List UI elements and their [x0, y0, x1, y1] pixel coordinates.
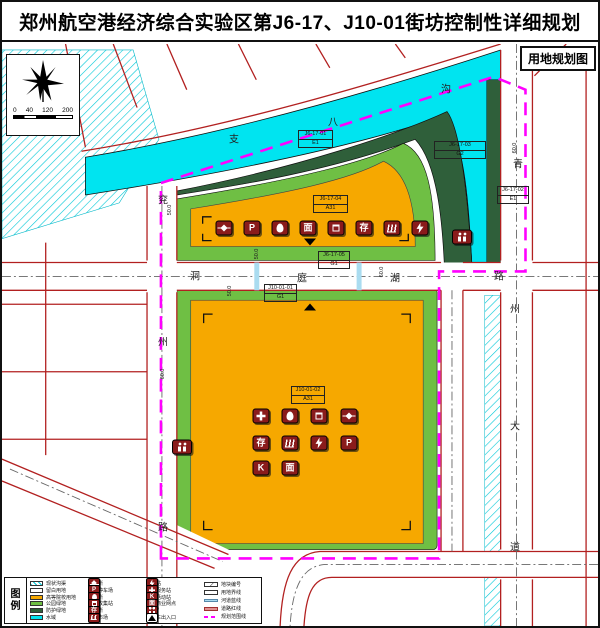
- switch-icon: [218, 224, 231, 233]
- scale-bar: [13, 115, 73, 119]
- legend-item-label: 规划范围线: [221, 613, 246, 620]
- facility-icon-plus: [253, 409, 270, 424]
- parcel-code: J10-01-01: [265, 285, 296, 294]
- facility-icon-drop: [282, 409, 299, 424]
- facility-icon-trash: [311, 409, 328, 424]
- legend-item: 肉菜市场: [88, 614, 142, 621]
- parcel-use-code: G1: [265, 294, 296, 302]
- legend-swatch-orange: [30, 595, 43, 600]
- legend-title: 图 例: [5, 578, 27, 623]
- entrance-triangle: [304, 239, 316, 246]
- map-sheet-label: 用地规划图: [520, 46, 596, 71]
- road-name-char: 湖: [390, 270, 400, 285]
- legend-col-landuse: 现状沟渠留白用地高等院校用地公园绿地防护绿地水域: [30, 580, 84, 621]
- road-name-char: 路: [158, 519, 168, 534]
- legend-item: 现状沟渠: [30, 580, 84, 587]
- parcel-code: J6-17-05: [319, 252, 349, 261]
- legend-item: 地块编号: [204, 581, 258, 588]
- facility-icon-cun: 存: [253, 436, 270, 451]
- parcel-label: J6-17-01E1: [298, 130, 333, 148]
- plus-icon: [257, 412, 266, 421]
- north-scale-box: 040120200: [6, 54, 80, 136]
- legend-item-label: 公园绿地: [46, 600, 66, 607]
- legend-item-label: 河道蓝线: [221, 597, 241, 604]
- legend-title-char: 例: [11, 601, 21, 613]
- legend: 图 例 现状沟渠留白用地高等院校用地公园绿地防护绿地水域 开闭所P公共停车场邮政…: [4, 577, 262, 624]
- legend-title-char: 图: [11, 589, 21, 601]
- dimension-label: 50.0: [254, 249, 260, 260]
- road-name-char: 州: [158, 334, 168, 349]
- parcel-label: J10-01-01G1: [264, 284, 297, 302]
- people-icon: [457, 233, 468, 242]
- drop-icon: [277, 224, 284, 233]
- legend-line-redband: [204, 607, 218, 611]
- legend-swatch-hatch: [30, 581, 43, 586]
- dimension-label: 50.0: [227, 286, 233, 297]
- parcel-label: J6-17-02E1: [497, 186, 529, 204]
- facility-icon-bolt: [412, 221, 429, 236]
- road-name-char: 青: [513, 156, 523, 171]
- facility-icon-basket: [384, 221, 401, 236]
- scale-ticks: 040120200: [13, 107, 73, 114]
- road-name-char: 沟: [441, 81, 451, 96]
- legend-line-tag: [204, 582, 218, 587]
- legend-columns: 现状沟渠留白用地高等院校用地公园绿地防护绿地水域 开闭所P公共停车场邮政所垃圾收…: [27, 578, 261, 623]
- legend-item: 留白用地: [30, 587, 84, 594]
- trash-icon: [333, 225, 340, 232]
- legend-swatch-white: [30, 588, 43, 593]
- switch-icon: [343, 412, 356, 421]
- legend-col-lines: 地块编号用地界线河道蓝线道路红线规划范围线: [204, 580, 258, 621]
- parcel-code: J6-17-01: [299, 131, 332, 140]
- facility-icon-cun: 存: [356, 221, 373, 236]
- legend-item-label: 留白用地: [46, 587, 66, 594]
- dimension-label: 50.0: [167, 205, 173, 216]
- legend-swatch-dkgreen: [30, 608, 43, 613]
- legend-item: 机动车出入口: [146, 614, 200, 621]
- map-overlay: 洞庭湖路兖州路青州大道支八沟J6-17-01E1J6-17-03G2J6-17-…: [2, 44, 598, 626]
- basket-icon: [91, 615, 98, 620]
- drop-icon: [287, 412, 294, 421]
- basket-icon: [285, 439, 295, 447]
- legend-item: 规划范围线: [204, 613, 258, 620]
- parcel-use-code: A31: [314, 205, 347, 213]
- facility-icon-K: K: [253, 461, 270, 476]
- parcel-code: J6-17-02: [498, 187, 528, 196]
- road-name-char: 八: [328, 114, 338, 129]
- legend-line-magenta: [204, 616, 218, 619]
- legend-item: 水域: [30, 614, 84, 621]
- dimension-label: 60.0: [160, 369, 166, 380]
- road-name-char: 大: [510, 418, 520, 433]
- legend-col-facilities-2: 变电站卫生服务站K文化活动站面社区商业网点公厕机动车出入口: [146, 580, 200, 621]
- facility-icon-basket: [88, 614, 100, 621]
- road-name-char: 庭: [297, 270, 307, 285]
- legend-item: 河道蓝线: [204, 597, 258, 604]
- parcel-use-code: G1: [319, 261, 349, 269]
- basket-icon: [387, 224, 397, 232]
- legend-item: 防护绿地: [30, 607, 84, 614]
- parcel-code: J6-17-03: [435, 142, 485, 151]
- facility-icon-mian: 面: [282, 461, 299, 476]
- road-name-char: 洞: [190, 268, 200, 283]
- legend-item-label: 水域: [46, 614, 56, 621]
- facility-icon-tri: [146, 614, 158, 621]
- scale-tick: 120: [42, 107, 53, 114]
- dimension-label: 60.0: [512, 143, 518, 154]
- parcel-label: J6-17-04A31: [313, 195, 348, 213]
- page-title: 郑州航空港经济综合实验区第J6-17、J10-01街坊控制性详细规划: [2, 2, 598, 42]
- bolt-icon: [316, 438, 323, 449]
- legend-line-rect: [204, 590, 218, 595]
- map-area: 洞庭湖路兖州路青州大道支八沟J6-17-01E1J6-17-03G2J6-17-…: [2, 44, 598, 626]
- facility-icon-switch: [216, 221, 233, 236]
- legend-line-blueline: [204, 599, 218, 602]
- planning-sheet: 郑州航空港经济综合实验区第J6-17、J10-01街坊控制性详细规划: [0, 0, 600, 628]
- toilet-icon: [172, 440, 192, 455]
- facility-icon-P: P: [244, 221, 261, 236]
- legend-item-label: 高等院校用地: [46, 594, 76, 601]
- road-name-char: 道: [510, 539, 520, 554]
- legend-item-label: 用地界线: [221, 589, 241, 596]
- legend-item: 道路红线: [204, 605, 258, 612]
- parcel-label: J10-01-02A31: [291, 386, 325, 404]
- people-icon: [177, 443, 188, 452]
- legend-item-label: 道路红线: [221, 605, 241, 612]
- facility-icon-drop: [272, 221, 289, 236]
- facility-icon-bolt: [311, 436, 328, 451]
- parcel-use-code: A31: [292, 396, 324, 404]
- legend-item: 高等院校用地: [30, 594, 84, 601]
- parcel-code: J6-17-04: [314, 196, 347, 205]
- road-name-char: 州: [510, 301, 520, 316]
- legend-col-facilities-1: 开闭所P公共停车场邮政所垃圾收集站存储蓄所肉菜市场: [88, 580, 142, 621]
- legend-item-label: 现状沟渠: [46, 580, 66, 587]
- toilet-icon: [452, 230, 472, 245]
- dimension-label: 60.0: [379, 267, 385, 278]
- entrance-triangle: [304, 304, 316, 311]
- trash-icon: [316, 413, 323, 420]
- legend-item: 公园绿地: [30, 600, 84, 607]
- facility-icon-switch: [341, 409, 358, 424]
- legend-swatch-green: [30, 601, 43, 606]
- legend-item-label: 地块编号: [221, 581, 241, 588]
- parcel-label: J6-17-05G1: [318, 251, 350, 269]
- parcel-label: J6-17-03G2: [434, 141, 486, 159]
- tri-icon: [148, 615, 156, 621]
- facility-icon-basket: [282, 436, 299, 451]
- bolt-icon: [417, 223, 424, 234]
- parcel-use-code: G2: [435, 151, 485, 159]
- road-name-char: 路: [494, 268, 504, 283]
- legend-item: 用地界线: [204, 589, 258, 596]
- legend-swatch-cyan: [30, 615, 43, 620]
- legend-item-label: 防护绿地: [46, 607, 66, 614]
- north-arrow-icon: [22, 57, 64, 105]
- facility-icon-trash: [328, 221, 345, 236]
- scale-tick: 0: [13, 107, 17, 114]
- scale-tick: 40: [26, 107, 33, 114]
- parcel-use-code: E1: [299, 140, 332, 148]
- facility-icon-P: P: [341, 436, 358, 451]
- facility-icon-mian: 面: [300, 221, 317, 236]
- road-name-char: 支: [229, 131, 239, 146]
- scale-tick: 200: [62, 107, 73, 114]
- parcel-code: J10-01-02: [292, 387, 324, 396]
- parcel-use-code: E1: [498, 196, 528, 204]
